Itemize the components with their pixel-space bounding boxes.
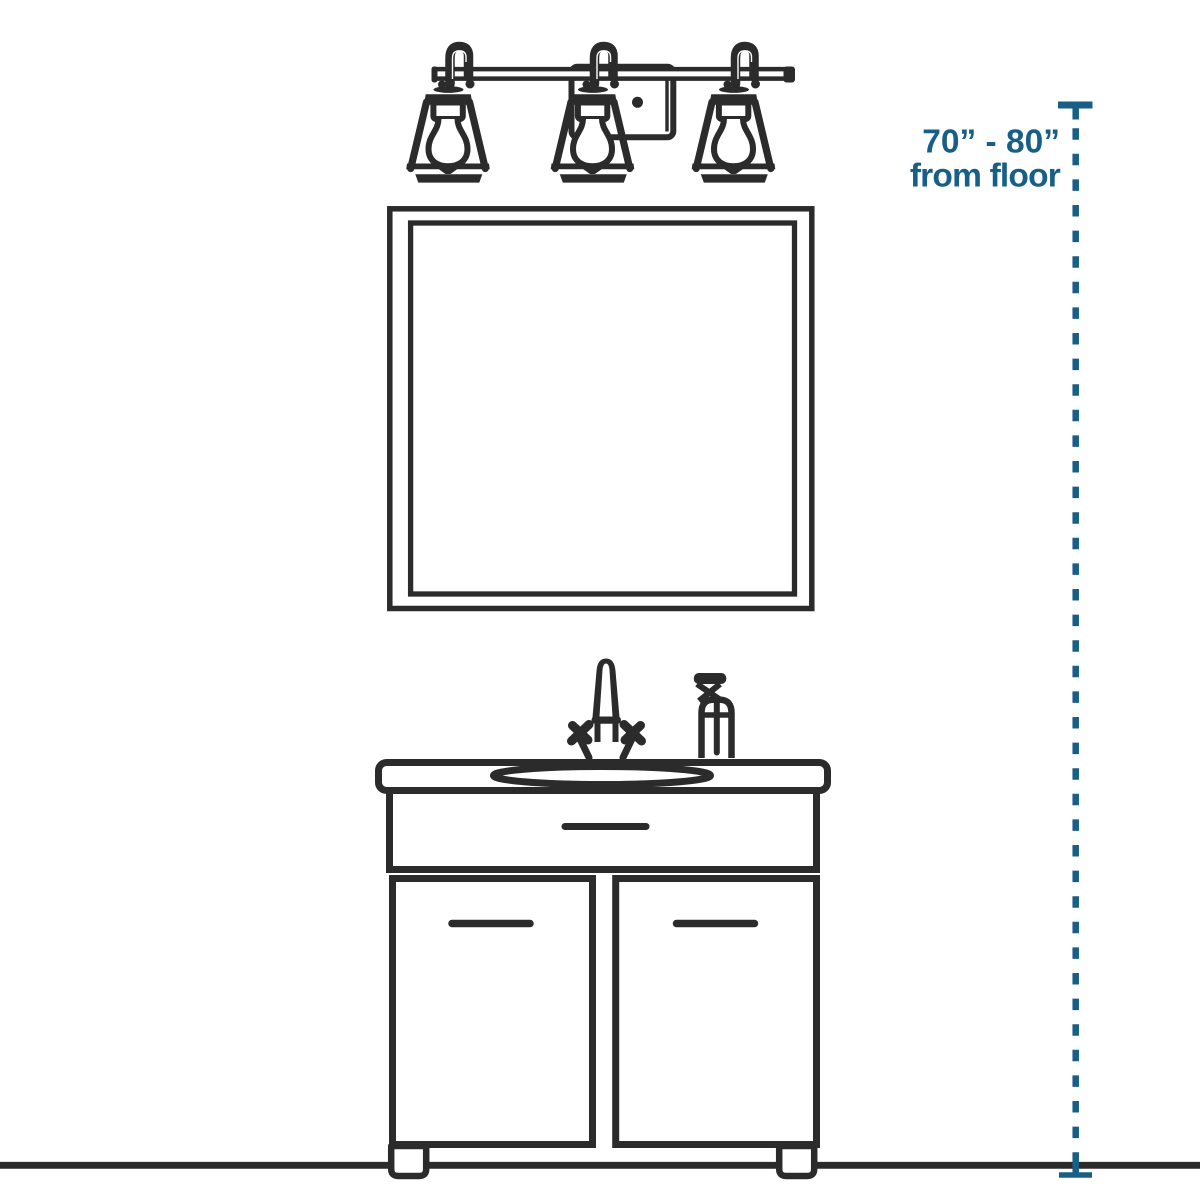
svg-text:from floor: from floor <box>910 157 1061 194</box>
svg-text:70” - 80”: 70” - 80” <box>922 123 1060 160</box>
